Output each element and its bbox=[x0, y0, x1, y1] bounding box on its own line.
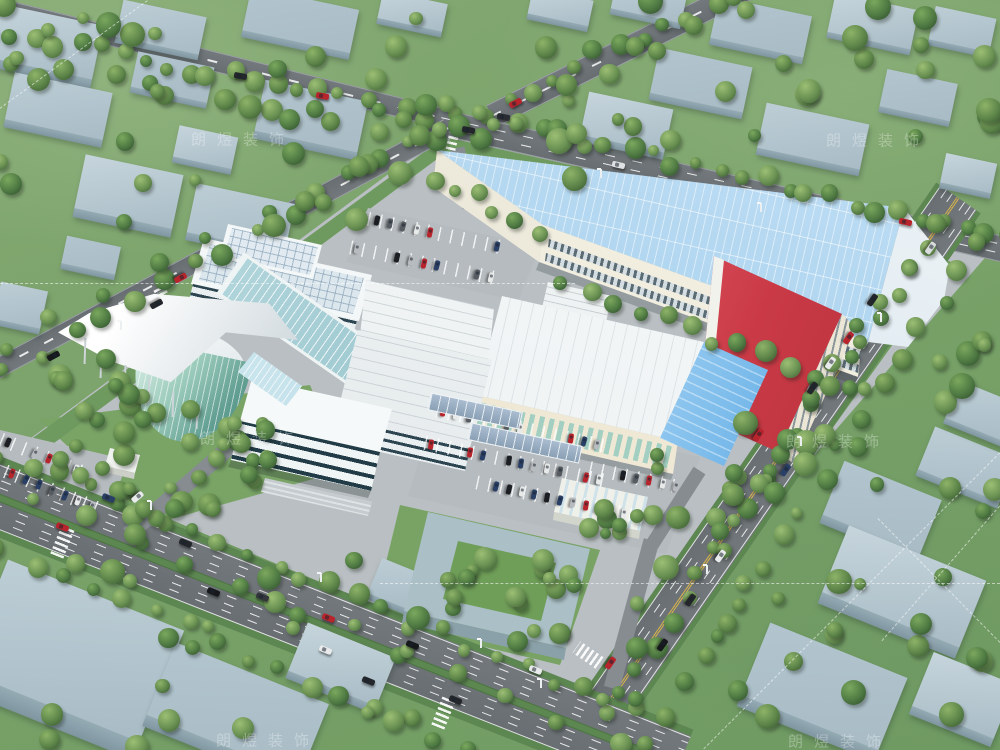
survey-dashed-line bbox=[700, 452, 1000, 750]
tree bbox=[123, 574, 137, 588]
tree bbox=[507, 631, 528, 652]
tree bbox=[252, 224, 264, 236]
tree bbox=[150, 253, 169, 272]
tree bbox=[124, 291, 145, 312]
gatehouse-side bbox=[0, 0, 1000, 750]
tree bbox=[684, 16, 703, 35]
tree bbox=[446, 589, 463, 606]
tree bbox=[627, 662, 642, 677]
car bbox=[518, 458, 525, 469]
car bbox=[61, 490, 70, 501]
tree bbox=[268, 60, 286, 78]
tree bbox=[315, 194, 332, 211]
tree bbox=[485, 206, 498, 219]
tree bbox=[556, 74, 578, 96]
tree bbox=[158, 628, 178, 648]
office-front-window-bands bbox=[0, 0, 1000, 750]
car-windshield bbox=[810, 384, 816, 390]
tree bbox=[27, 493, 39, 505]
tree bbox=[794, 430, 819, 455]
tree bbox=[134, 174, 151, 191]
car bbox=[544, 463, 551, 474]
car bbox=[466, 412, 472, 423]
context-building bbox=[708, 0, 811, 64]
car-windshield bbox=[454, 412, 458, 416]
car-windshield bbox=[236, 73, 241, 78]
car bbox=[569, 497, 576, 508]
street-light-head bbox=[597, 168, 601, 170]
block-side-face bbox=[708, 37, 802, 63]
car-windshield bbox=[718, 552, 724, 558]
survey-dashed-line bbox=[0, 283, 575, 284]
block-side-face bbox=[915, 469, 999, 509]
tree bbox=[763, 464, 777, 478]
tree bbox=[472, 105, 487, 120]
tree bbox=[628, 700, 645, 717]
tree bbox=[737, 1, 755, 19]
tree bbox=[349, 583, 370, 604]
tree bbox=[977, 105, 998, 126]
context-building bbox=[736, 622, 907, 750]
tree bbox=[466, 564, 478, 576]
street-light-pole bbox=[600, 169, 602, 178]
car bbox=[149, 298, 163, 309]
tree bbox=[841, 680, 866, 705]
tree bbox=[69, 439, 83, 453]
tree bbox=[390, 647, 407, 664]
canopy-column bbox=[100, 352, 103, 378]
tree bbox=[66, 554, 85, 573]
car-windshield bbox=[415, 226, 419, 230]
tree bbox=[814, 424, 835, 445]
tree bbox=[976, 98, 1000, 123]
tree bbox=[188, 254, 202, 268]
context-building bbox=[114, 0, 206, 60]
car-windshield bbox=[533, 463, 537, 467]
car-windshield bbox=[422, 260, 426, 264]
tree bbox=[155, 679, 169, 693]
car-windshield bbox=[489, 274, 493, 278]
tree bbox=[653, 555, 679, 581]
zebra-crossing bbox=[418, 98, 431, 118]
street-light-head bbox=[797, 436, 801, 438]
block-side-face bbox=[366, 593, 416, 618]
tree bbox=[227, 61, 245, 79]
tree bbox=[733, 411, 757, 435]
tree bbox=[155, 86, 174, 105]
tree bbox=[424, 732, 441, 749]
tree bbox=[409, 125, 430, 146]
car bbox=[72, 464, 80, 475]
tree bbox=[54, 371, 74, 391]
car-windshield bbox=[24, 476, 28, 480]
car-windshield bbox=[375, 218, 379, 222]
tree bbox=[415, 111, 434, 130]
tree bbox=[259, 451, 277, 469]
car-windshield bbox=[660, 641, 666, 647]
tree bbox=[807, 370, 824, 387]
block-top-face bbox=[757, 103, 869, 170]
edge-line bbox=[572, 186, 941, 719]
block-top-face bbox=[929, 6, 997, 52]
tree bbox=[532, 549, 554, 571]
center-yellow bbox=[589, 197, 959, 731]
car-windshield bbox=[688, 596, 694, 602]
tree bbox=[907, 635, 929, 657]
block-side-face bbox=[826, 32, 910, 56]
tree bbox=[650, 448, 664, 462]
car-windshield bbox=[429, 441, 433, 444]
tree bbox=[211, 244, 233, 266]
tree bbox=[505, 587, 525, 607]
campus-drive bbox=[123, 419, 260, 540]
tree bbox=[123, 482, 136, 495]
block-side-face bbox=[129, 87, 207, 109]
edge-line bbox=[607, 210, 976, 743]
tree bbox=[626, 37, 645, 56]
tree bbox=[777, 429, 798, 450]
campus-lawn bbox=[0, 0, 1000, 750]
tree bbox=[497, 688, 513, 704]
tree bbox=[134, 411, 152, 429]
tree bbox=[793, 452, 817, 476]
tree bbox=[732, 598, 746, 612]
canopy-column bbox=[196, 403, 199, 429]
parking-stall-row bbox=[349, 241, 499, 286]
tree bbox=[240, 466, 258, 484]
block-side-face bbox=[928, 39, 990, 58]
car bbox=[487, 272, 494, 283]
tree bbox=[150, 84, 164, 98]
courtyard-building-walls bbox=[0, 0, 1000, 750]
tree bbox=[50, 461, 70, 481]
tree bbox=[302, 677, 323, 698]
context-buildings-layer bbox=[0, 0, 1000, 750]
tree bbox=[218, 417, 238, 437]
tree bbox=[181, 400, 200, 419]
car bbox=[461, 126, 475, 134]
context-building bbox=[939, 153, 997, 199]
car bbox=[604, 656, 616, 670]
context-building bbox=[72, 154, 183, 237]
tree bbox=[3, 56, 19, 72]
car-windshield bbox=[595, 441, 599, 445]
car bbox=[531, 489, 538, 500]
car-windshield bbox=[533, 492, 537, 496]
tree bbox=[461, 569, 475, 583]
tree bbox=[748, 129, 761, 142]
car-windshield bbox=[428, 229, 432, 233]
tree bbox=[366, 699, 383, 716]
car-windshield bbox=[584, 503, 588, 506]
tree bbox=[750, 474, 769, 493]
tree bbox=[460, 741, 476, 750]
car-windshield bbox=[571, 500, 575, 504]
tree bbox=[727, 514, 740, 527]
car-windshield bbox=[468, 449, 472, 453]
car bbox=[233, 72, 247, 80]
lane-dash bbox=[0, 463, 689, 744]
car-windshield bbox=[476, 271, 480, 275]
street-light-head bbox=[317, 572, 321, 574]
small-hut-side bbox=[0, 0, 1000, 750]
tree bbox=[74, 33, 91, 50]
verge bbox=[608, 211, 980, 746]
tree bbox=[656, 707, 675, 726]
tree bbox=[949, 373, 974, 398]
tree bbox=[1, 29, 17, 45]
car bbox=[101, 493, 115, 503]
tree bbox=[848, 437, 868, 457]
tree bbox=[0, 451, 3, 464]
block-side-face bbox=[939, 182, 991, 199]
car-windshield bbox=[756, 431, 762, 437]
tree bbox=[479, 109, 494, 124]
car-windshield bbox=[179, 274, 184, 280]
tree bbox=[853, 335, 867, 349]
tree bbox=[973, 45, 996, 68]
tree bbox=[0, 538, 4, 558]
tree bbox=[406, 606, 430, 630]
car-windshield bbox=[50, 487, 54, 491]
tree bbox=[170, 491, 192, 513]
tree bbox=[122, 505, 143, 526]
car bbox=[48, 484, 57, 495]
tree bbox=[908, 129, 923, 144]
tree bbox=[755, 561, 771, 577]
tree bbox=[637, 736, 653, 750]
factory-shadow bbox=[0, 0, 1000, 750]
tree bbox=[646, 637, 668, 659]
tree bbox=[916, 214, 931, 229]
tree bbox=[648, 42, 666, 60]
tree bbox=[892, 288, 907, 303]
survey-dashed-line bbox=[882, 505, 1000, 641]
block-top-face bbox=[368, 558, 430, 613]
tree bbox=[643, 505, 663, 525]
tree bbox=[321, 112, 340, 131]
tree bbox=[96, 12, 122, 38]
tree bbox=[983, 478, 1000, 501]
block-top-face bbox=[528, 0, 594, 26]
tree bbox=[726, 488, 743, 505]
tree bbox=[821, 184, 839, 202]
car-windshield bbox=[451, 697, 456, 703]
tree bbox=[151, 604, 163, 616]
tree bbox=[849, 318, 864, 333]
car-windshield bbox=[135, 493, 141, 499]
tree bbox=[784, 652, 803, 671]
context-building bbox=[366, 558, 431, 618]
tree bbox=[683, 316, 702, 335]
edge-line bbox=[0, 512, 669, 750]
car bbox=[556, 495, 563, 506]
red-building-gable-trim bbox=[0, 0, 1000, 750]
office-east-wing-upper-roof bbox=[0, 0, 1000, 750]
tree bbox=[118, 384, 140, 406]
block-side-face bbox=[142, 714, 300, 750]
tree bbox=[851, 201, 865, 215]
tree bbox=[282, 142, 306, 166]
tree bbox=[134, 389, 149, 404]
block-side-face bbox=[72, 208, 172, 237]
car bbox=[428, 439, 434, 450]
tree bbox=[370, 123, 388, 141]
tree bbox=[471, 184, 488, 201]
car-windshield bbox=[61, 461, 65, 465]
zebra-crossing bbox=[444, 130, 459, 156]
car bbox=[420, 258, 427, 269]
tree bbox=[199, 232, 211, 244]
tree bbox=[968, 233, 986, 251]
office-east-wing-roof bbox=[0, 0, 1000, 750]
car-windshield bbox=[464, 127, 469, 132]
tree bbox=[246, 453, 260, 467]
tree bbox=[244, 71, 265, 92]
tree bbox=[583, 283, 602, 302]
lane-dash bbox=[0, 5, 458, 122]
block-top-face bbox=[940, 153, 997, 193]
tree bbox=[755, 340, 777, 362]
zebra-crossing bbox=[153, 284, 173, 307]
block-top-face bbox=[0, 560, 184, 742]
street-light-head bbox=[117, 320, 121, 322]
tree bbox=[775, 55, 792, 72]
tree bbox=[707, 541, 720, 554]
car-windshield bbox=[507, 486, 511, 490]
tree bbox=[256, 417, 269, 430]
street-light-pole bbox=[320, 573, 322, 582]
street-light-pole bbox=[120, 321, 122, 330]
tree bbox=[612, 518, 627, 533]
block-top-face bbox=[822, 526, 986, 648]
tree bbox=[85, 478, 97, 490]
car-windshield bbox=[559, 469, 563, 473]
tree bbox=[214, 89, 235, 110]
car bbox=[426, 227, 433, 238]
tree bbox=[328, 686, 349, 707]
block-top-face bbox=[912, 652, 1000, 739]
tree bbox=[548, 715, 563, 730]
gatehouse-roof bbox=[0, 0, 1000, 750]
factory-west-wall bbox=[0, 0, 1000, 750]
zebra-crossing bbox=[13, 678, 38, 713]
tree bbox=[902, 262, 916, 276]
tree bbox=[651, 462, 664, 475]
tree bbox=[27, 68, 50, 91]
context-building bbox=[0, 560, 184, 750]
car bbox=[373, 215, 380, 226]
street-light-head bbox=[537, 678, 541, 680]
car bbox=[453, 409, 460, 420]
car-windshield bbox=[318, 93, 323, 98]
tree bbox=[873, 310, 890, 327]
context-building bbox=[915, 427, 1000, 509]
context-building bbox=[3, 72, 112, 147]
tree bbox=[761, 472, 776, 487]
tree bbox=[906, 317, 925, 336]
tree bbox=[372, 103, 386, 117]
tree bbox=[549, 623, 569, 643]
tree bbox=[939, 477, 961, 499]
block-top-face bbox=[173, 125, 238, 169]
tree bbox=[599, 64, 620, 85]
block-top-face bbox=[580, 92, 673, 153]
tree bbox=[209, 633, 226, 650]
campus-lawn bbox=[0, 0, 1000, 750]
tree bbox=[988, 110, 1000, 130]
car-windshield bbox=[783, 466, 789, 472]
car-windshield bbox=[388, 221, 392, 225]
tree bbox=[771, 445, 790, 464]
tree bbox=[553, 276, 566, 289]
car bbox=[130, 491, 144, 504]
car bbox=[361, 676, 375, 686]
tree bbox=[535, 36, 558, 59]
car-windshield bbox=[499, 114, 504, 119]
car-windshield bbox=[648, 478, 652, 482]
tree bbox=[709, 0, 729, 14]
tree bbox=[666, 506, 689, 529]
tree bbox=[220, 90, 234, 104]
tree bbox=[509, 116, 523, 130]
car bbox=[4, 437, 13, 448]
car bbox=[405, 640, 419, 650]
campus-lawn bbox=[0, 0, 1000, 750]
car-windshield bbox=[6, 439, 10, 443]
car bbox=[672, 481, 679, 492]
tree bbox=[660, 130, 680, 150]
tree bbox=[675, 672, 694, 691]
tree bbox=[683, 591, 697, 605]
tree bbox=[0, 343, 13, 356]
tree bbox=[612, 525, 627, 540]
office-tower-skylight-roof bbox=[0, 0, 1000, 750]
tree bbox=[361, 706, 374, 719]
tree bbox=[165, 499, 184, 518]
verge bbox=[0, 450, 694, 737]
tree bbox=[567, 60, 581, 74]
car bbox=[779, 463, 791, 477]
curb bbox=[0, 136, 453, 381]
factory-window-band bbox=[0, 0, 1000, 750]
tree bbox=[9, 51, 24, 66]
workshop-white-roof bbox=[0, 0, 1000, 750]
tree bbox=[858, 382, 872, 396]
tree bbox=[260, 450, 273, 463]
car bbox=[924, 241, 936, 255]
car bbox=[479, 450, 486, 461]
block-top-face bbox=[650, 48, 752, 113]
tree bbox=[875, 373, 895, 393]
tree bbox=[725, 464, 743, 482]
tree bbox=[388, 161, 412, 185]
overlay-layer: 朗煜装饰朗煜装饰朗煜装饰朗煜装饰朗煜装饰朗煜装饰 bbox=[0, 0, 1000, 750]
tree bbox=[604, 295, 622, 313]
block-side-face bbox=[526, 13, 588, 32]
zebra-crossing bbox=[431, 697, 456, 732]
block-top-face bbox=[741, 622, 907, 750]
tree bbox=[523, 658, 535, 670]
tree bbox=[306, 100, 324, 118]
tree bbox=[291, 572, 306, 587]
car-windshield bbox=[608, 659, 614, 665]
tree bbox=[41, 703, 63, 725]
car bbox=[632, 473, 639, 484]
tree bbox=[238, 95, 262, 119]
tree bbox=[716, 164, 729, 177]
lane-dash bbox=[0, 470, 686, 750]
